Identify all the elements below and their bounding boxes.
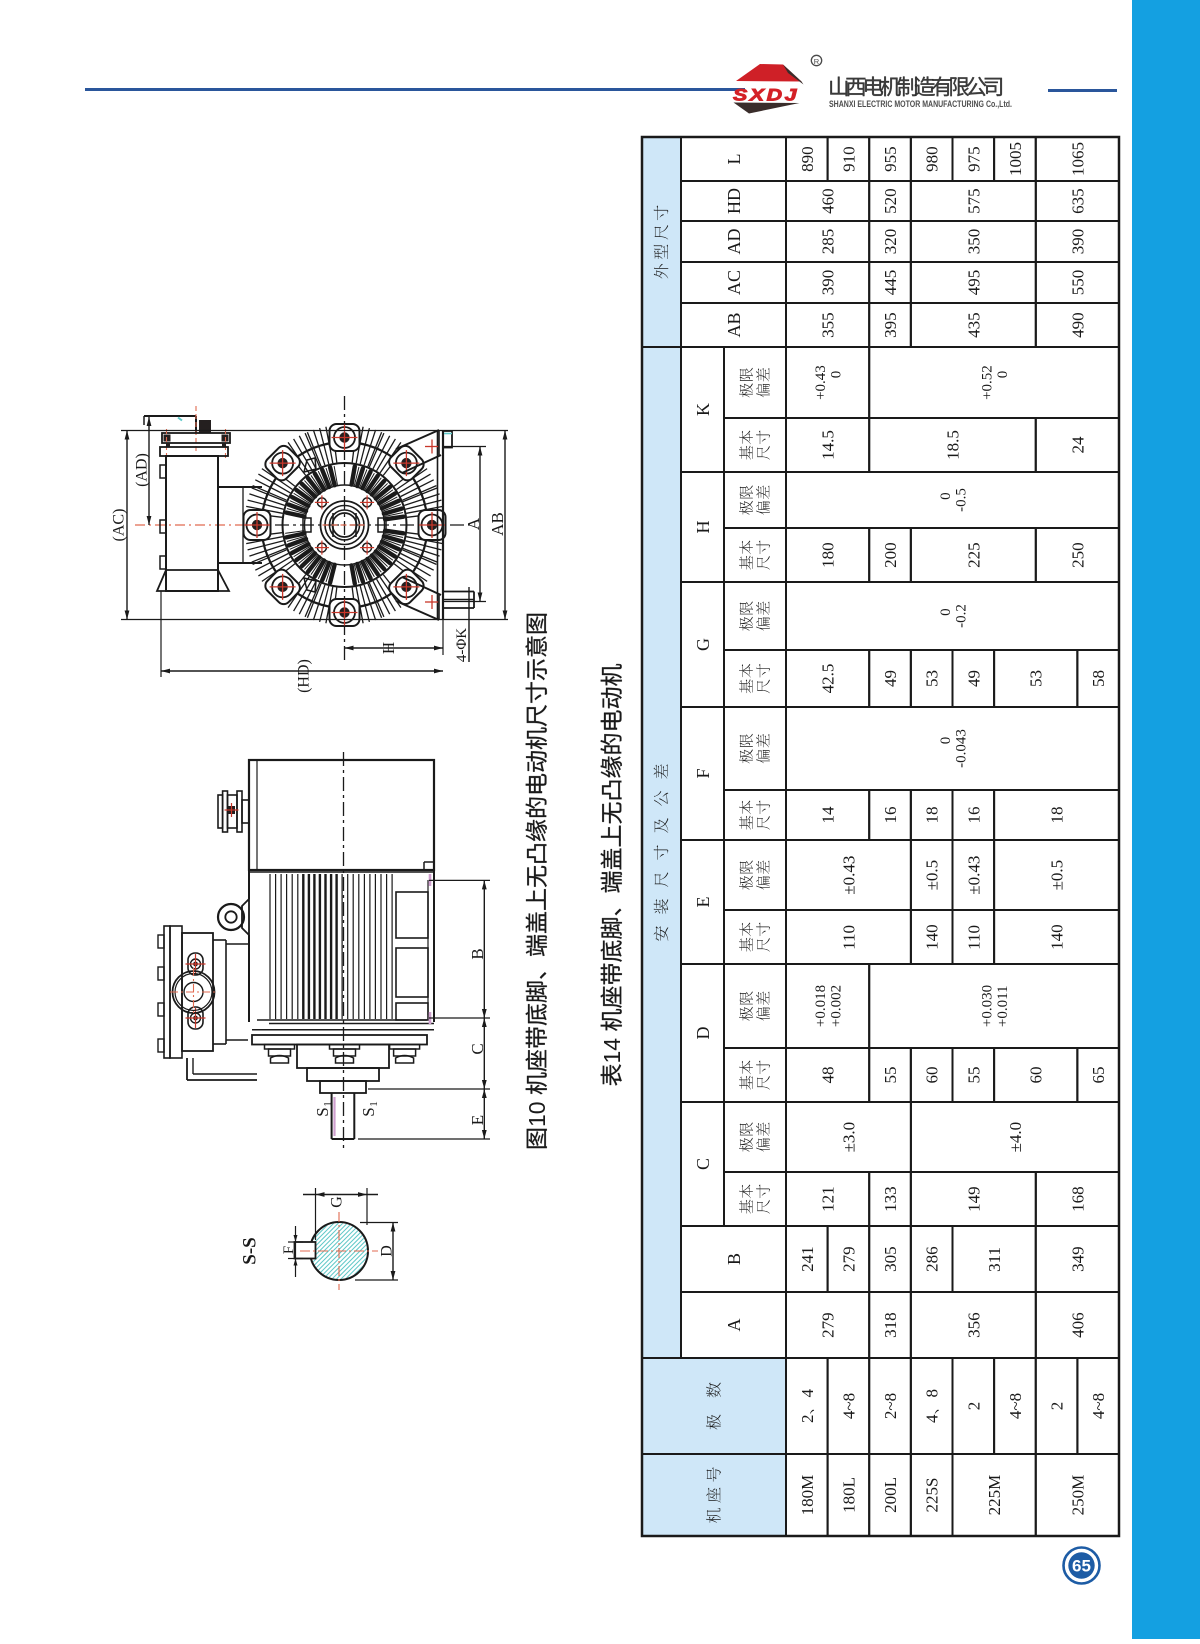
svg-text:4: 4 bbox=[798, 1389, 817, 1398]
svg-text:14: 14 bbox=[599, 1038, 625, 1064]
svg-text:318: 318 bbox=[881, 1312, 900, 1338]
svg-text:16: 16 bbox=[964, 807, 983, 824]
svg-text:890: 890 bbox=[798, 146, 817, 172]
svg-text:+0.018: +0.018 bbox=[813, 985, 829, 1027]
svg-text:356: 356 bbox=[964, 1312, 983, 1338]
svg-text:149: 149 bbox=[964, 1186, 983, 1212]
svg-text:(AD): (AD) bbox=[134, 453, 151, 487]
svg-text:1: 1 bbox=[368, 1101, 380, 1107]
svg-text:0: 0 bbox=[938, 737, 954, 745]
svg-text:D: D bbox=[379, 1245, 396, 1257]
svg-text:14: 14 bbox=[819, 806, 838, 824]
svg-text:55: 55 bbox=[881, 1067, 900, 1084]
svg-text:910: 910 bbox=[839, 146, 858, 172]
svg-text:635: 635 bbox=[1068, 188, 1087, 214]
svg-text:L: L bbox=[724, 154, 744, 165]
svg-text:349: 349 bbox=[1068, 1246, 1087, 1272]
svg-text:435: 435 bbox=[964, 312, 983, 338]
svg-text:65: 65 bbox=[1072, 1557, 1091, 1576]
svg-text:F: F bbox=[281, 1246, 297, 1254]
svg-text:HD: HD bbox=[724, 188, 744, 214]
svg-text:121: 121 bbox=[819, 1186, 838, 1212]
svg-text:B: B bbox=[724, 1253, 744, 1265]
svg-text:0: 0 bbox=[938, 492, 954, 500]
svg-text:140: 140 bbox=[923, 924, 942, 950]
svg-text:-0.5: -0.5 bbox=[954, 488, 970, 512]
svg-text:K: K bbox=[693, 403, 713, 416]
svg-text:G: G bbox=[329, 1196, 346, 1208]
svg-text:2: 2 bbox=[1048, 1402, 1067, 1411]
svg-text:0: 0 bbox=[829, 371, 845, 379]
svg-text:285: 285 bbox=[819, 229, 838, 255]
svg-text:355: 355 bbox=[819, 312, 838, 338]
svg-text:4~8: 4~8 bbox=[1006, 1393, 1025, 1419]
svg-text:H: H bbox=[693, 521, 713, 534]
svg-text:S: S bbox=[313, 1107, 332, 1116]
svg-text:286: 286 bbox=[923, 1246, 942, 1272]
svg-text:279: 279 bbox=[819, 1312, 838, 1338]
svg-text:18: 18 bbox=[1048, 807, 1067, 824]
svg-text:S-S: S-S bbox=[240, 1237, 261, 1264]
svg-text:460: 460 bbox=[819, 188, 838, 214]
svg-text:53: 53 bbox=[923, 670, 942, 687]
svg-text:+0.43: +0.43 bbox=[813, 365, 829, 400]
svg-text:A: A bbox=[724, 1319, 744, 1332]
svg-text:279: 279 bbox=[839, 1246, 858, 1272]
svg-text:±3.0: ±3.0 bbox=[839, 1122, 858, 1153]
svg-text:-0.2: -0.2 bbox=[954, 604, 970, 628]
svg-text:250M: 250M bbox=[1068, 1475, 1087, 1516]
svg-text:305: 305 bbox=[881, 1246, 900, 1272]
svg-text:18: 18 bbox=[923, 807, 942, 824]
svg-text:2: 2 bbox=[964, 1402, 983, 1411]
svg-text:225: 225 bbox=[964, 542, 983, 568]
svg-text:311: 311 bbox=[985, 1247, 1004, 1272]
svg-text:49: 49 bbox=[964, 670, 983, 687]
svg-text:110: 110 bbox=[839, 925, 858, 950]
svg-text:4~8: 4~8 bbox=[1089, 1393, 1108, 1419]
svg-text:SHANXI ELECTRIC MOTOR MANUFACT: SHANXI ELECTRIC MOTOR MANUFACTURING Co.,… bbox=[829, 99, 1012, 109]
svg-text:390: 390 bbox=[819, 270, 838, 296]
svg-text:2: 2 bbox=[798, 1415, 817, 1424]
svg-text:E: E bbox=[468, 1115, 487, 1125]
svg-text:AC: AC bbox=[724, 270, 744, 295]
svg-text:550: 550 bbox=[1068, 270, 1087, 296]
svg-text:±0.43: ±0.43 bbox=[964, 856, 983, 895]
svg-text:140: 140 bbox=[1048, 924, 1067, 950]
svg-text:575: 575 bbox=[964, 188, 983, 214]
svg-text:R: R bbox=[814, 57, 820, 66]
svg-text:110: 110 bbox=[964, 925, 983, 950]
svg-text:F: F bbox=[693, 768, 713, 778]
svg-text:+0.002: +0.002 bbox=[829, 985, 845, 1027]
svg-text:4~8: 4~8 bbox=[839, 1393, 858, 1419]
svg-text:350: 350 bbox=[964, 229, 983, 255]
svg-text:(AC): (AC) bbox=[111, 509, 128, 542]
svg-text:180M: 180M bbox=[798, 1475, 817, 1516]
svg-text:2~8: 2~8 bbox=[881, 1393, 900, 1419]
svg-text:250: 250 bbox=[1068, 542, 1087, 568]
svg-text:49: 49 bbox=[881, 670, 900, 687]
svg-text:18.5: 18.5 bbox=[943, 430, 962, 460]
svg-text:180L: 180L bbox=[839, 1477, 858, 1513]
svg-text:1: 1 bbox=[322, 1101, 334, 1107]
svg-text:(HD): (HD) bbox=[296, 659, 313, 693]
svg-text:H: H bbox=[379, 642, 398, 654]
svg-text:10: 10 bbox=[524, 1101, 550, 1127]
svg-text:133: 133 bbox=[881, 1186, 900, 1212]
svg-text:225S: 225S bbox=[923, 1478, 942, 1513]
svg-text:406: 406 bbox=[1068, 1312, 1087, 1338]
svg-text:445: 445 bbox=[881, 270, 900, 296]
svg-text:53: 53 bbox=[1027, 670, 1046, 687]
svg-text:1065: 1065 bbox=[1068, 142, 1087, 176]
svg-text:16: 16 bbox=[881, 807, 900, 824]
svg-text:65: 65 bbox=[1089, 1067, 1108, 1084]
svg-text:1005: 1005 bbox=[1006, 142, 1025, 176]
svg-text:980: 980 bbox=[923, 146, 942, 172]
svg-text:B: B bbox=[468, 948, 487, 959]
svg-text:G: G bbox=[693, 638, 713, 651]
svg-text:395: 395 bbox=[881, 312, 900, 338]
svg-text:390: 390 bbox=[1068, 229, 1087, 255]
svg-text:320: 320 bbox=[881, 229, 900, 255]
svg-text:168: 168 bbox=[1068, 1186, 1087, 1212]
svg-text:+0.52: +0.52 bbox=[980, 365, 996, 400]
svg-text:0: 0 bbox=[995, 371, 1011, 379]
svg-text:+0.030: +0.030 bbox=[980, 985, 996, 1027]
svg-text:200: 200 bbox=[881, 542, 900, 568]
svg-text:SXDJ: SXDJ bbox=[733, 86, 799, 105]
svg-text:AB: AB bbox=[488, 512, 507, 536]
svg-text:4: 4 bbox=[923, 1414, 942, 1423]
svg-text:14.5: 14.5 bbox=[819, 430, 838, 460]
svg-text:±0.43: ±0.43 bbox=[839, 856, 858, 895]
svg-text:-0.043: -0.043 bbox=[954, 729, 970, 768]
svg-text:225M: 225M bbox=[985, 1475, 1004, 1516]
svg-text:241: 241 bbox=[798, 1246, 817, 1272]
svg-text:200L: 200L bbox=[881, 1477, 900, 1513]
svg-text:180: 180 bbox=[819, 542, 838, 568]
svg-text:24: 24 bbox=[1068, 436, 1087, 454]
svg-text:C: C bbox=[468, 1043, 487, 1054]
svg-text:8: 8 bbox=[923, 1389, 942, 1398]
svg-text:C: C bbox=[693, 1158, 713, 1170]
svg-text:48: 48 bbox=[819, 1067, 838, 1084]
svg-text:S: S bbox=[359, 1107, 378, 1116]
svg-text:60: 60 bbox=[923, 1067, 942, 1084]
svg-text:55: 55 bbox=[964, 1067, 983, 1084]
svg-text:±0.5: ±0.5 bbox=[923, 860, 942, 891]
svg-text:±0.5: ±0.5 bbox=[1048, 860, 1067, 891]
svg-text:AD: AD bbox=[724, 229, 744, 255]
svg-text:520: 520 bbox=[881, 188, 900, 214]
svg-text:0: 0 bbox=[938, 608, 954, 616]
svg-text:E: E bbox=[693, 897, 713, 908]
svg-text:490: 490 bbox=[1068, 312, 1087, 338]
svg-text:+0.011: +0.011 bbox=[995, 985, 1011, 1027]
svg-text:D: D bbox=[693, 1027, 713, 1040]
svg-text:A: A bbox=[464, 517, 483, 530]
svg-text:975: 975 bbox=[964, 146, 983, 172]
svg-text:4-ΦK: 4-ΦK bbox=[454, 628, 470, 662]
svg-text:±4.0: ±4.0 bbox=[1006, 1122, 1025, 1153]
svg-text:495: 495 bbox=[964, 270, 983, 296]
svg-text:42.5: 42.5 bbox=[819, 664, 838, 694]
svg-text:955: 955 bbox=[881, 146, 900, 172]
svg-text:58: 58 bbox=[1089, 670, 1108, 687]
svg-text:AB: AB bbox=[724, 312, 744, 337]
svg-text:60: 60 bbox=[1027, 1067, 1046, 1084]
